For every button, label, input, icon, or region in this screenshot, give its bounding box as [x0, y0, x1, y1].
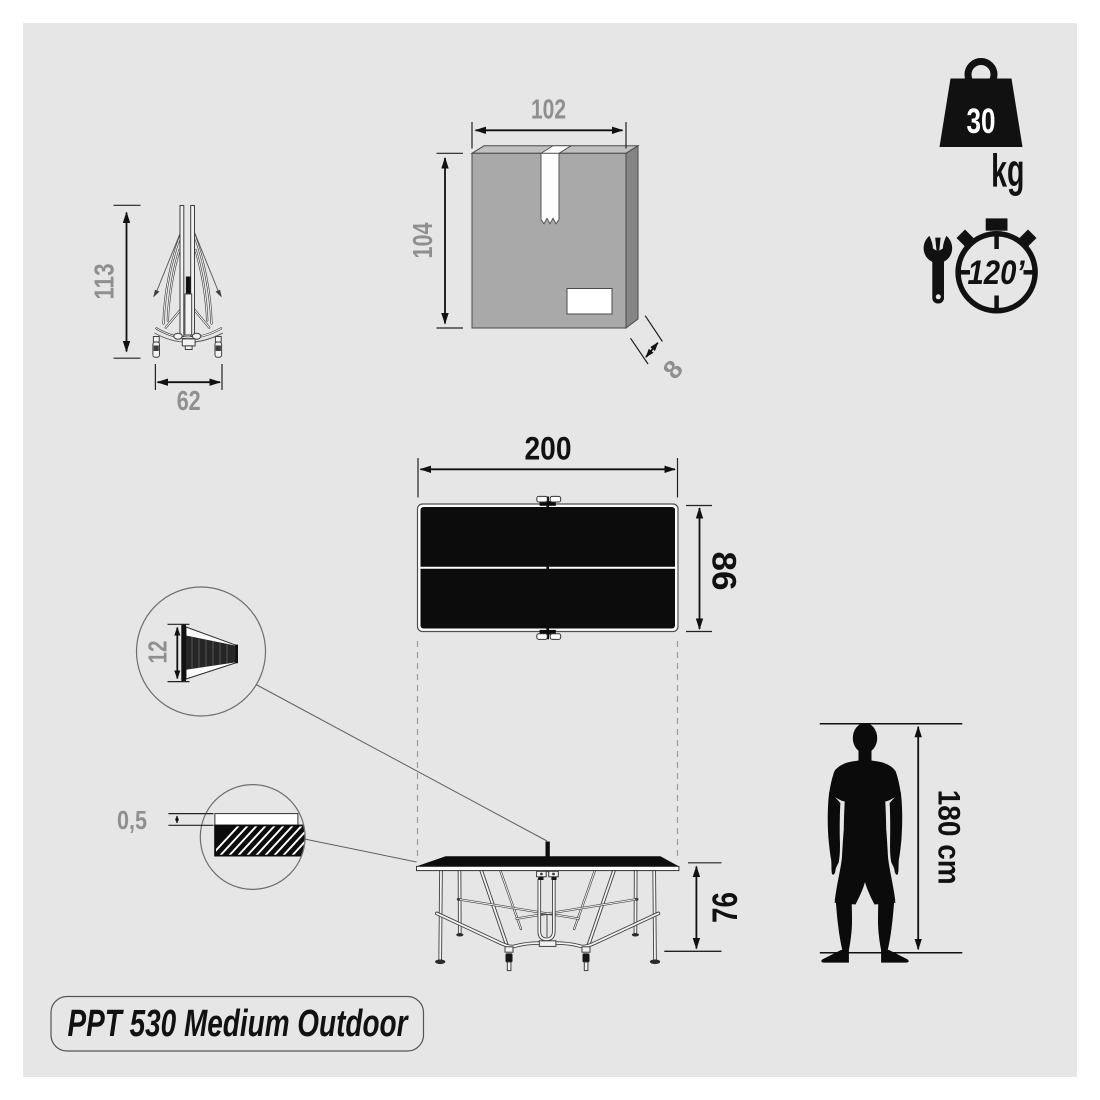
svg-text:76: 76: [706, 892, 745, 923]
svg-text:86: 86: [705, 552, 743, 591]
svg-text:113: 113: [89, 264, 120, 300]
svg-text:kg: kg: [991, 146, 1024, 198]
svg-text:120’: 120’: [968, 254, 1025, 292]
svg-text:62: 62: [177, 385, 201, 416]
svg-text:180 cm: 180 cm: [932, 790, 968, 885]
svg-text:12: 12: [143, 641, 173, 664]
svg-text:102: 102: [531, 94, 566, 125]
svg-text:0,5: 0,5: [117, 805, 147, 835]
svg-text:104: 104: [407, 222, 438, 258]
svg-text:30: 30: [967, 102, 996, 141]
svg-text:200: 200: [525, 431, 572, 467]
svg-text:PPT 530 Medium Outdoor: PPT 530 Medium Outdoor: [68, 1003, 410, 1045]
